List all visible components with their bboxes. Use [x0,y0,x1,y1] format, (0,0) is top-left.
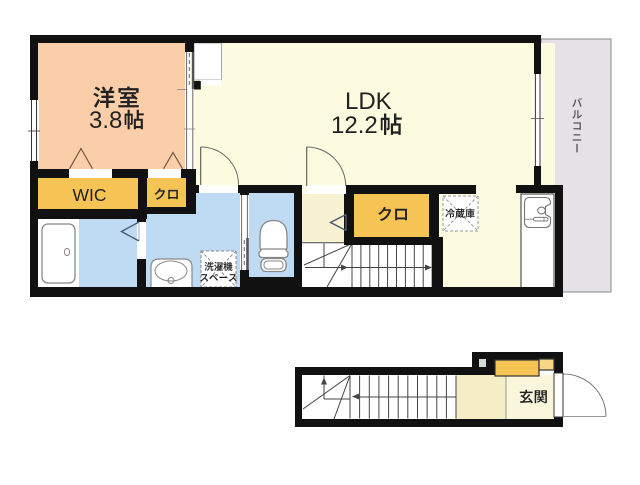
svg-text:12.2: 12.2 [331,112,378,139]
svg-text:3.8: 3.8 [89,107,122,134]
svg-text:WIC: WIC [72,185,106,205]
svg-text:LDK: LDK [345,88,392,115]
